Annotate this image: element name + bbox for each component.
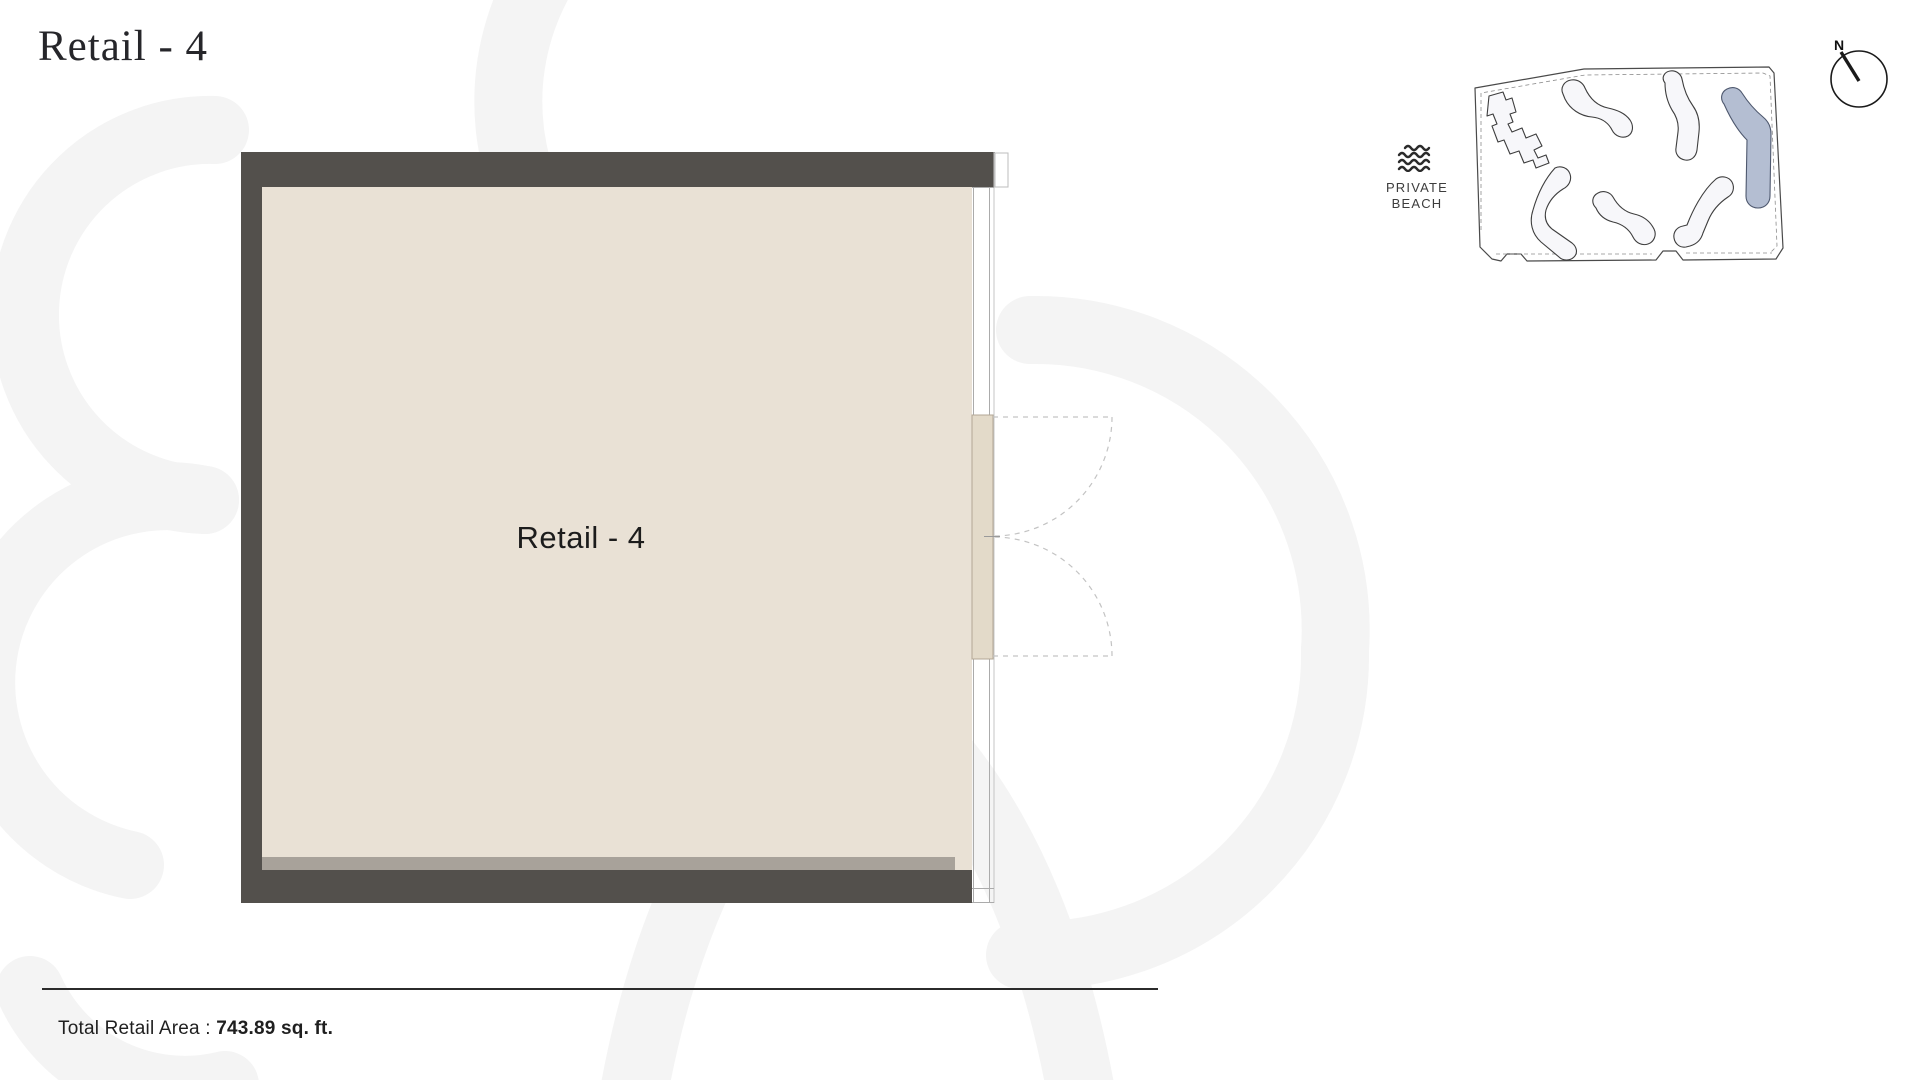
private-beach-label-line2: BEACH bbox=[1377, 196, 1457, 212]
footer-rule bbox=[42, 988, 1158, 990]
compass-n-label: N bbox=[1834, 37, 1844, 53]
page-title: Retail - 4 bbox=[38, 22, 208, 71]
private-beach-block: PRIVATE BEACH bbox=[1377, 144, 1457, 213]
wall-top bbox=[241, 152, 995, 187]
total-area-text: Total Retail Area : 743.89 sq. ft. bbox=[58, 1018, 333, 1040]
wall-left bbox=[241, 187, 262, 903]
wall-bottom bbox=[241, 870, 972, 903]
key-plan bbox=[1470, 62, 1815, 267]
compass-needle bbox=[1841, 52, 1859, 81]
wall-end-cap bbox=[995, 153, 1008, 187]
private-beach-label-line1: PRIVATE bbox=[1377, 180, 1457, 196]
watermark-swirl bbox=[0, 496, 205, 865]
waves-icon bbox=[1394, 144, 1440, 172]
floor-plan: Retail - 4 bbox=[241, 152, 1121, 912]
floor-band bbox=[262, 857, 955, 870]
watermark-swirl bbox=[25, 130, 215, 500]
total-area-label: Total Retail Area : bbox=[58, 1018, 216, 1039]
north-arrow-icon: N bbox=[1826, 34, 1898, 114]
total-area-value: 743.89 sq. ft. bbox=[216, 1018, 333, 1039]
page: Retail - 4 bbox=[0, 0, 1920, 1080]
door-swing bbox=[993, 417, 1112, 656]
unit-label: Retail - 4 bbox=[516, 520, 645, 555]
